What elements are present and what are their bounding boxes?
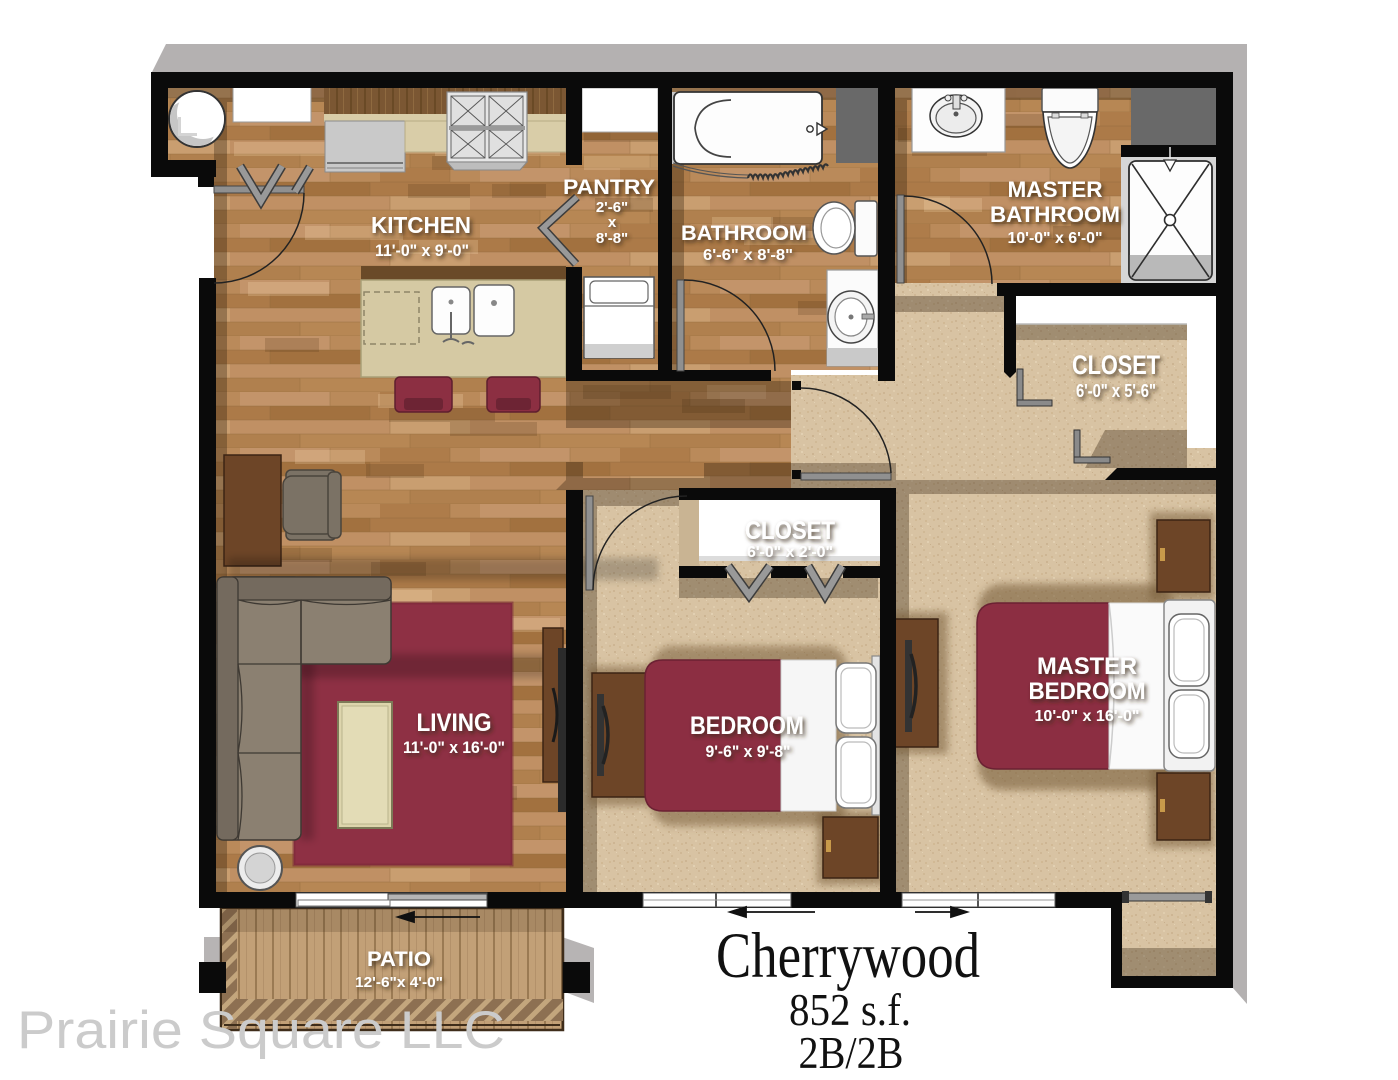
svg-text:CLOSET: CLOSET — [1072, 350, 1160, 380]
svg-text:x: x — [608, 214, 617, 231]
svg-text:6'-0" x 5'-6": 6'-0" x 5'-6" — [1076, 381, 1156, 401]
svg-text:KITCHEN: KITCHEN — [371, 212, 471, 238]
svg-text:11'-0" x 9'-0": 11'-0" x 9'-0" — [375, 242, 469, 260]
svg-text:Cherrywood: Cherrywood — [716, 920, 980, 992]
svg-text:9'-6" x 9'-8": 9'-6" x 9'-8" — [706, 743, 791, 761]
svg-text:CLOSET: CLOSET — [745, 517, 835, 545]
svg-text:8'-8": 8'-8" — [596, 230, 628, 247]
svg-text:6'-0" x 2'-0": 6'-0" x 2'-0" — [747, 544, 833, 561]
svg-text:MASTER: MASTER — [1008, 177, 1103, 202]
svg-text:10'-0" x 16'-0": 10'-0" x 16'-0" — [1035, 708, 1140, 725]
svg-text:10'-0" x 6'-0": 10'-0" x 6'-0" — [1008, 230, 1103, 247]
svg-text:BEDROOM: BEDROOM — [690, 712, 804, 740]
svg-text:Prairie Square LLC: Prairie Square LLC — [17, 1001, 505, 1060]
svg-text:BATHROOM: BATHROOM — [681, 221, 807, 245]
svg-text:11'-0" x 16'-0": 11'-0" x 16'-0" — [403, 739, 505, 757]
svg-text:PATIO: PATIO — [367, 948, 431, 971]
svg-text:MASTER: MASTER — [1037, 653, 1137, 680]
svg-text:LIVING: LIVING — [417, 709, 492, 737]
svg-text:2B/2B: 2B/2B — [799, 1028, 904, 1078]
svg-text:BEDROOM: BEDROOM — [1029, 678, 1146, 705]
svg-text:6'-6" x 8'-8": 6'-6" x 8'-8" — [703, 247, 793, 264]
svg-text:12'-6"x 4'-0": 12'-6"x 4'-0" — [355, 975, 443, 991]
svg-text:BATHROOM: BATHROOM — [990, 202, 1120, 227]
svg-text:PANTRY: PANTRY — [563, 176, 655, 199]
